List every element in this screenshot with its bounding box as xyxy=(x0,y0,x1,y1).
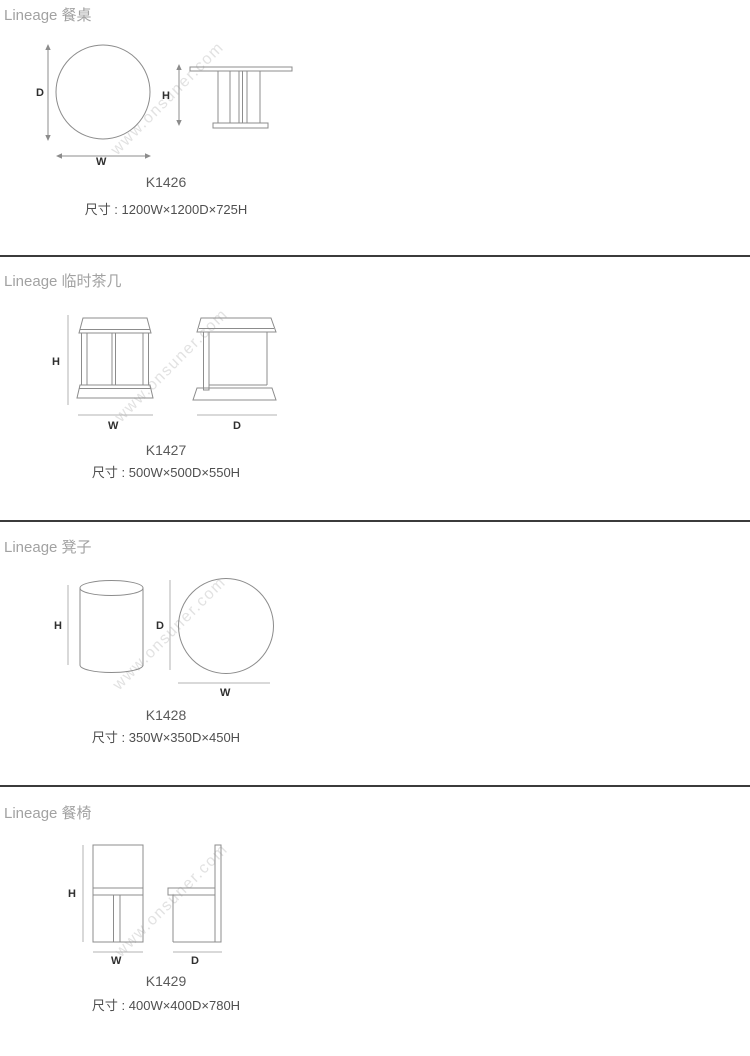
dim-label-width: W xyxy=(220,687,231,699)
model-number: K1427 xyxy=(0,442,332,458)
chair-side-view xyxy=(168,845,221,942)
product-section-dining-table: Lineage 餐桌 www.onsuner.com xyxy=(0,0,750,255)
catalog-page: Lineage 餐桌 www.onsuner.com xyxy=(0,0,750,1056)
dim-label-height: H xyxy=(54,620,62,632)
dim-label-width: W xyxy=(111,955,122,967)
chair-front-view xyxy=(93,845,143,942)
section-title: Lineage 临时茶几 xyxy=(4,270,122,291)
dining-chair-drawing: H W D xyxy=(0,830,340,975)
model-number: K1428 xyxy=(0,707,332,723)
dimensions-text: 尺寸 : 350W×350D×450H xyxy=(0,727,332,746)
dim-label-height: H xyxy=(52,356,60,368)
tea-table-drawing: H W D xyxy=(0,300,340,440)
dim-label-height: H xyxy=(162,90,170,102)
dim-label-width: W xyxy=(96,156,107,168)
model-number: K1429 xyxy=(0,973,332,989)
dim-label-width: W xyxy=(108,420,119,432)
dimensions-text: 尺寸 : 500W×500D×550H xyxy=(0,462,332,481)
table-side-view xyxy=(190,67,292,128)
stool-top-view-circle xyxy=(179,579,274,674)
dimensions-text: 尺寸 : 1200W×1200D×725H xyxy=(0,199,332,218)
dimension-arrow-depth xyxy=(45,44,50,141)
dim-label-depth: D xyxy=(36,87,44,99)
dim-label-depth: D xyxy=(191,955,199,967)
tea-table-front-view xyxy=(77,318,153,398)
section-title: Lineage 餐椅 xyxy=(4,802,92,823)
stool-side-view-cylinder xyxy=(80,581,143,673)
dim-label-height: H xyxy=(68,888,76,900)
dimensions-text: 尺寸 : 400W×400D×780H xyxy=(0,995,332,1014)
tea-table-side-view xyxy=(193,318,276,400)
stool-drawing: H D W xyxy=(0,565,340,705)
section-title: Lineage 凳子 xyxy=(4,536,92,557)
product-section-stool: Lineage 凳子 www.onsuner.com H D W K1428 尺… xyxy=(0,522,750,785)
dim-label-depth: D xyxy=(156,620,164,632)
dim-label-depth: D xyxy=(233,420,241,432)
dimension-arrow-height xyxy=(176,64,181,126)
model-number: K1426 xyxy=(0,174,332,190)
table-top-view-circle xyxy=(56,45,150,139)
product-section-dining-chair: Lineage 餐椅 www.onsuner.com H W D K xyxy=(0,787,750,1056)
section-title: Lineage 餐桌 xyxy=(4,4,92,25)
product-section-tea-table: Lineage 临时茶几 www.onsuner.com xyxy=(0,257,750,520)
